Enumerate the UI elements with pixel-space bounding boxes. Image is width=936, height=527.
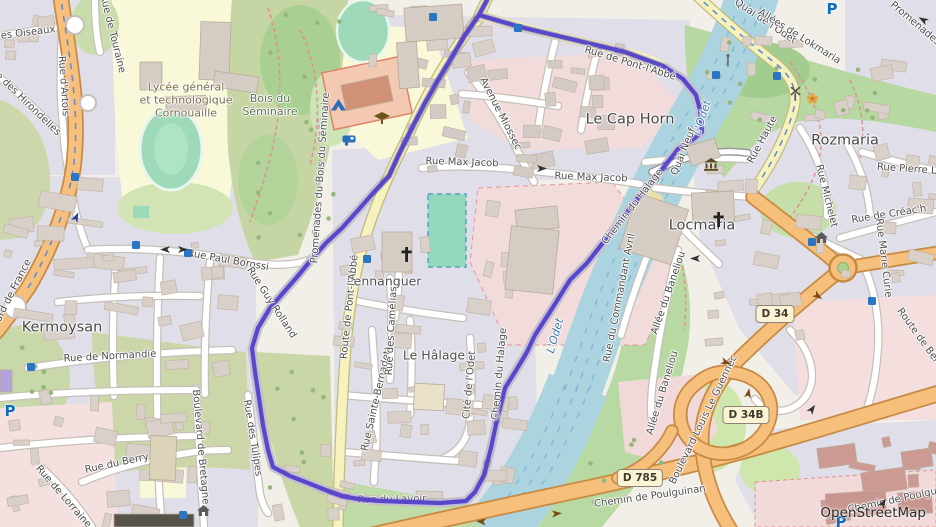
attribution-link[interactable]: OpenStreetMap bbox=[820, 505, 926, 521]
map-viewport[interactable]: Rue du Lavoir KermoysanLe Cap HornLocmar… bbox=[0, 0, 936, 527]
boundary-overlay bbox=[0, 0, 936, 527]
